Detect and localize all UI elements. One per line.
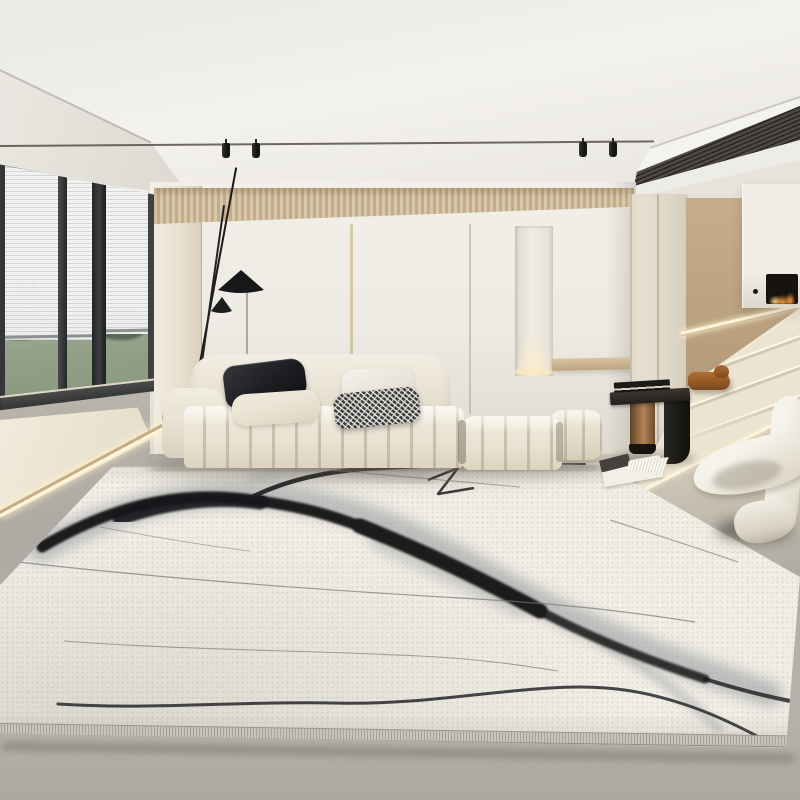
window-frame [0, 156, 5, 424]
sofa-module-gap [556, 422, 563, 462]
track-spotlight-2 [252, 139, 260, 159]
dog-sculpture [688, 372, 730, 390]
side-table-panel-leg [664, 396, 690, 464]
living-room-photo [0, 0, 800, 800]
sofa-module-gap [458, 420, 466, 464]
dog-sculpture-head [714, 365, 729, 378]
window-mullion [58, 158, 67, 414]
wall-niche-light [515, 226, 553, 376]
track-spotlight-3 [579, 138, 587, 158]
fireplace-flames [766, 274, 798, 304]
floating-fireplace [742, 184, 800, 308]
wall-panel-seam [469, 224, 471, 414]
track-spotlight-4 [609, 138, 617, 158]
sofa-ottoman-module-1 [462, 416, 562, 470]
track-spotlight-1 [222, 139, 230, 159]
closet-door-seam [657, 194, 659, 452]
fireplace-opening [766, 274, 798, 304]
fireplace-knob [753, 289, 758, 294]
side-table-wood-leg [630, 400, 655, 450]
sofa-seat-module [184, 406, 464, 468]
cream-pillow [231, 389, 321, 427]
spotlight-body [222, 143, 230, 158]
window-corner-post [92, 156, 106, 416]
spotlight-body [579, 142, 587, 157]
spotlight-body [252, 143, 260, 158]
niche-glow-line [515, 370, 553, 374]
wall-console-ledge [552, 357, 634, 371]
side-table-base [629, 444, 656, 454]
spotlight-body [609, 142, 617, 157]
